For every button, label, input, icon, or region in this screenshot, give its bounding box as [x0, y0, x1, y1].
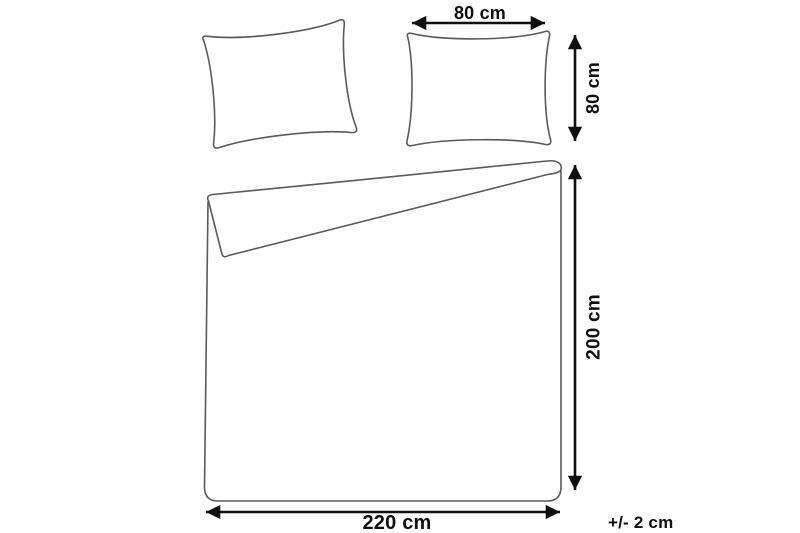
- pillow-left-outline: [202, 19, 357, 148]
- line-art-svg: [0, 0, 800, 533]
- pillow-right-outline: [407, 31, 551, 146]
- pillow-height-label: 80 cm: [584, 62, 602, 114]
- tolerance-label: +/- 2 cm: [608, 514, 673, 531]
- product-outlines: [202, 19, 561, 501]
- duvet-height-label: 200 cm: [585, 294, 604, 360]
- dimension-diagram: 80 cm 80 cm 200 cm 220 cm +/- 2 cm: [0, 0, 800, 533]
- pillow-width-label: 80 cm: [410, 4, 550, 22]
- duvet-width-label: 220 cm: [327, 513, 467, 533]
